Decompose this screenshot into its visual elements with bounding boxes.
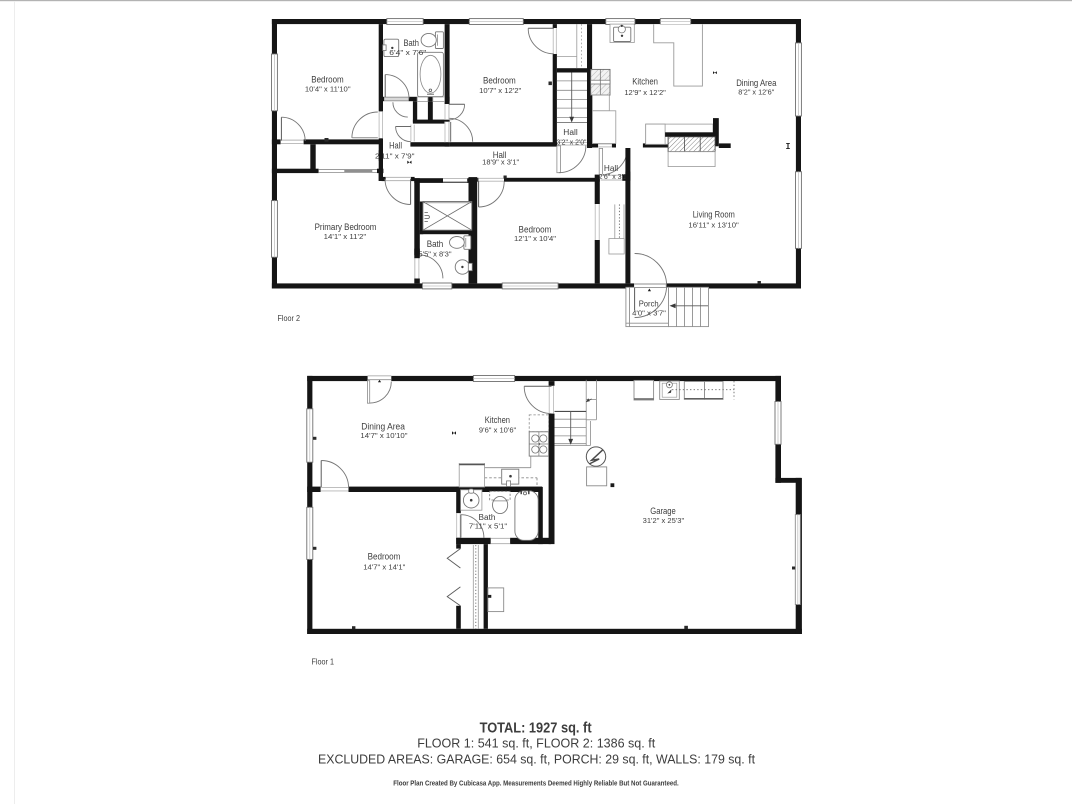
svg-text:Hall: Hall bbox=[389, 141, 402, 151]
svg-text:Bath: Bath bbox=[427, 239, 444, 249]
svg-text:6'4" x 7'6": 6'4" x 7'6" bbox=[389, 48, 426, 57]
svg-text:16'11" x 13'10": 16'11" x 13'10" bbox=[688, 220, 739, 229]
svg-text:EXCLUDED AREAS: GARAGE: 654 sq: EXCLUDED AREAS: GARAGE: 654 sq. ft, PORC… bbox=[318, 752, 755, 767]
svg-text:14'7" x 10'10": 14'7" x 10'10" bbox=[360, 431, 408, 440]
svg-text:Floor 2: Floor 2 bbox=[278, 313, 301, 323]
svg-text:Kitchen: Kitchen bbox=[632, 76, 658, 86]
svg-text:Bedroom: Bedroom bbox=[368, 552, 401, 562]
svg-text:Living Room: Living Room bbox=[693, 210, 735, 220]
svg-text:10'4" x 11'10": 10'4" x 11'10" bbox=[305, 85, 351, 94]
svg-text:Garage: Garage bbox=[650, 506, 676, 516]
svg-text:2'6" x 3'1": 2'6" x 3'1" bbox=[599, 174, 630, 181]
svg-text:Hall: Hall bbox=[563, 128, 578, 137]
svg-text:Bedroom: Bedroom bbox=[483, 76, 516, 86]
svg-text:9'6" x 10'6": 9'6" x 10'6" bbox=[479, 425, 517, 434]
svg-text:31'2" x 25'3": 31'2" x 25'3" bbox=[643, 516, 685, 525]
svg-text:Floor 1: Floor 1 bbox=[312, 657, 335, 667]
svg-text:18'9" x 3'1": 18'9" x 3'1" bbox=[482, 157, 519, 166]
svg-text:Porch: Porch bbox=[639, 299, 659, 308]
svg-text:Primary Bedroom: Primary Bedroom bbox=[315, 222, 377, 232]
svg-text:3'2" x 2'0": 3'2" x 2'0" bbox=[557, 139, 588, 146]
svg-text:Floor Plan Created By Cubicasa: Floor Plan Created By Cubicasa App. Meas… bbox=[393, 781, 679, 788]
svg-text:Bedroom: Bedroom bbox=[311, 74, 343, 84]
svg-text:14'1" x 11'2": 14'1" x 11'2" bbox=[324, 232, 367, 241]
svg-text:Dining Area: Dining Area bbox=[361, 422, 405, 432]
svg-text:7'11" x 5'1": 7'11" x 5'1" bbox=[469, 523, 508, 530]
svg-text:12'9" x 12'2": 12'9" x 12'2" bbox=[624, 88, 666, 97]
svg-text:Bath: Bath bbox=[403, 38, 419, 48]
svg-text:Hall: Hall bbox=[604, 164, 618, 173]
svg-text:10'7" x 12'2": 10'7" x 12'2" bbox=[479, 86, 522, 95]
svg-text:12'1" x 10'4": 12'1" x 10'4" bbox=[514, 234, 556, 243]
svg-text:8'2" x 12'6": 8'2" x 12'6" bbox=[738, 87, 774, 96]
svg-text:FLOOR 1: 541 sq. ft, FLOOR 2:: FLOOR 1: 541 sq. ft, FLOOR 2: 1386 sq. f… bbox=[417, 736, 655, 751]
svg-text:14'7" x 14'1": 14'7" x 14'1" bbox=[363, 562, 406, 571]
svg-text:Bath: Bath bbox=[479, 513, 496, 522]
svg-text:4'0" x 3'7": 4'0" x 3'7" bbox=[632, 311, 666, 318]
svg-text:TOTAL: 1927 sq. ft: TOTAL: 1927 sq. ft bbox=[480, 720, 592, 736]
svg-text:5'5" x 8'3": 5'5" x 8'3" bbox=[418, 250, 452, 259]
svg-text:Kitchen: Kitchen bbox=[485, 415, 510, 425]
svg-text:Dining Area: Dining Area bbox=[736, 78, 776, 88]
